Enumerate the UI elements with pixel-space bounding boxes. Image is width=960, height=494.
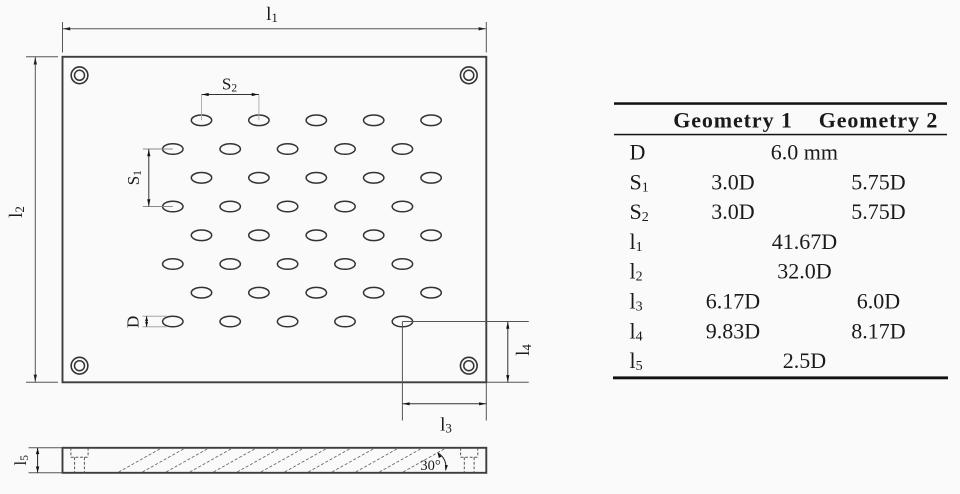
svg-text:Geometry 1: Geometry 1 — [673, 108, 793, 133]
svg-text:Geometry 2: Geometry 2 — [819, 108, 939, 133]
svg-text:3.0D: 3.0D — [711, 199, 754, 224]
svg-text:6.17D: 6.17D — [706, 289, 760, 314]
svg-text:D: D — [124, 316, 143, 328]
svg-text:9.83D: 9.83D — [706, 318, 760, 343]
svg-text:30°: 30° — [420, 458, 441, 474]
svg-text:5.75D: 5.75D — [851, 169, 905, 194]
svg-text:32.0D: 32.0D — [777, 259, 831, 284]
svg-text:6.0D: 6.0D — [857, 289, 900, 314]
svg-text:5.75D: 5.75D — [851, 199, 905, 224]
svg-text:3.0D: 3.0D — [711, 169, 754, 194]
svg-text:6.0 mm: 6.0 mm — [771, 140, 838, 165]
svg-text:2.5D: 2.5D — [783, 348, 826, 373]
svg-text:8.17D: 8.17D — [851, 318, 905, 343]
svg-text:41.67D: 41.67D — [772, 229, 837, 254]
svg-text:D: D — [630, 140, 646, 165]
